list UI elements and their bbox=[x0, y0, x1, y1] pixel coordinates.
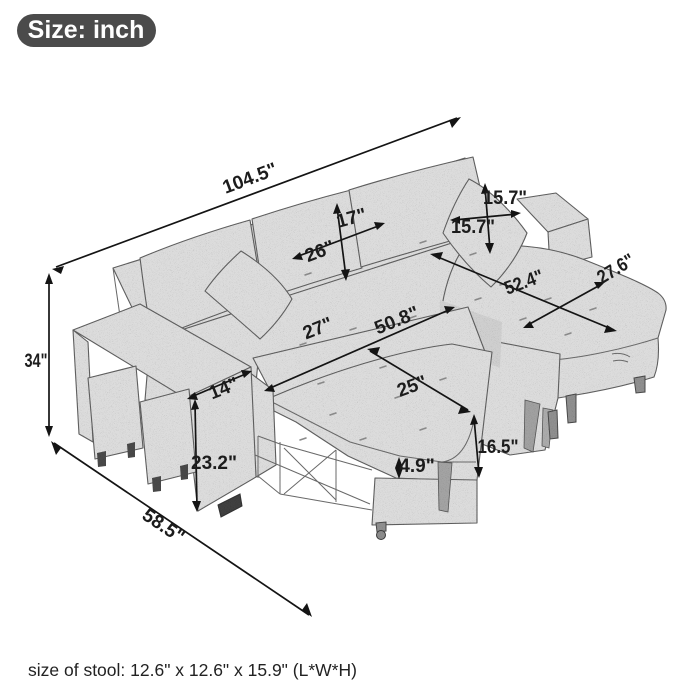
svg-text:15.7": 15.7" bbox=[451, 217, 495, 238]
svg-text:16.5": 16.5" bbox=[478, 437, 519, 458]
svg-text:size of stool: 12.6" x 12.6" x: size of stool: 12.6" x 12.6" x 15.9" (L*… bbox=[28, 660, 357, 680]
svg-text:34": 34" bbox=[25, 351, 48, 372]
svg-text:Size: inch: Size: inch bbox=[28, 16, 145, 44]
svg-text:23.2": 23.2" bbox=[191, 453, 237, 474]
svg-text:15.7": 15.7" bbox=[483, 188, 527, 209]
svg-text:4.9": 4.9" bbox=[399, 456, 434, 477]
